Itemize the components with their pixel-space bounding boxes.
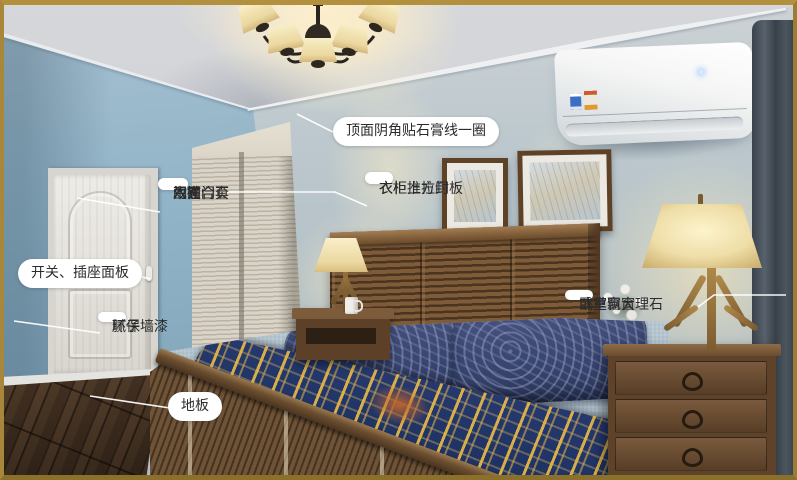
- ac-brand-label: [584, 91, 598, 111]
- mug: [345, 297, 358, 314]
- chest-drawer: [615, 361, 767, 395]
- callout-wardrobe: 衣柜 衣柜推拉门 衣柜上方封板: [365, 172, 393, 184]
- door-handle: [146, 266, 152, 281]
- callout-door-hardware: 门碰 门锁 生态门 木门合页 双面门套: [158, 178, 188, 190]
- picture-art-right: [529, 161, 600, 220]
- callout-line: 环保墙漆: [112, 317, 168, 338]
- right-lamp-shade: [642, 204, 762, 268]
- callout-floor: 地板: [168, 392, 222, 421]
- callout-line: 衣柜上方封板: [379, 178, 463, 201]
- callout-ceiling-molding: 顶面阴角贴石膏线一圈: [333, 117, 499, 146]
- callout-line: 或单窗大理石: [579, 295, 663, 316]
- ac-air-vane: [565, 116, 743, 137]
- chest-drawer: [615, 399, 767, 433]
- callout-bay-window: 卧室飘窗 或单窗大理石: [565, 290, 593, 300]
- chest-drawer: [615, 437, 767, 471]
- callout-switch-panel: 开关、插座面板: [18, 259, 142, 288]
- ac-energy-label: [570, 93, 582, 109]
- nightstand-left: [296, 308, 390, 360]
- nightstand-left-shelf: [306, 328, 376, 344]
- annotated-bedroom-photo: 顶面阴角贴石膏线一圈 门碰 门锁 生态门 木门合页 双面门套 开关、插座面板 腻…: [0, 0, 797, 480]
- chandelier: [230, 0, 408, 102]
- picture-frame-right: [517, 149, 612, 233]
- chest-of-drawers: [608, 344, 776, 480]
- air-conditioner: [554, 42, 756, 147]
- right-lamp-antler-base: [676, 264, 748, 352]
- callout-line: 双面门套: [173, 184, 229, 204]
- callout-wall-finish: 腻子 环保墙漆: [98, 312, 126, 322]
- right-lamp-finial: [698, 194, 703, 205]
- ac-status-led: [699, 70, 703, 74]
